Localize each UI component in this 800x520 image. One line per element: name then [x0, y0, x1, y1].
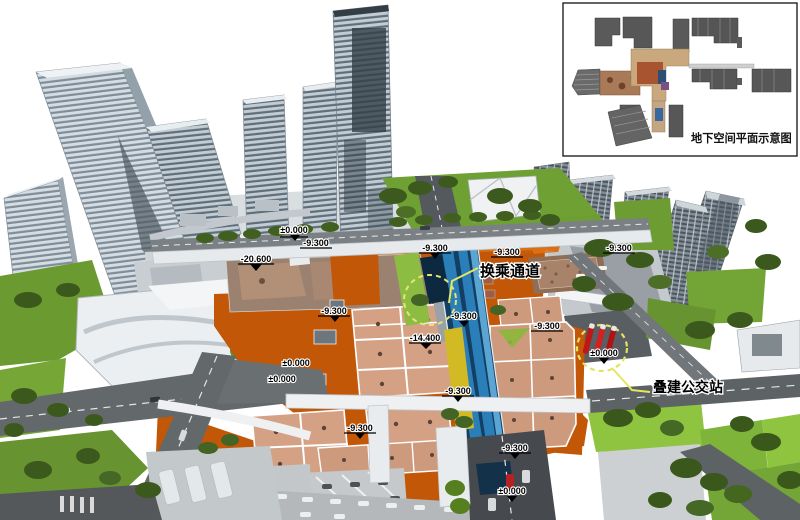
- svg-text:-9.300: -9.300: [502, 443, 528, 453]
- svg-text:±0.000: ±0.000: [282, 358, 309, 368]
- svg-text:-9.300: -9.300: [445, 386, 471, 396]
- svg-text:-9.300: -9.300: [303, 238, 329, 248]
- svg-text:-9.300: -9.300: [347, 423, 373, 433]
- svg-text:-9.300: -9.300: [606, 243, 632, 253]
- svg-text:-9.300: -9.300: [494, 247, 520, 257]
- svg-text:叠建公交站: 叠建公交站: [653, 379, 723, 395]
- svg-text:换乘通道: 换乘通道: [480, 262, 540, 280]
- svg-text:地下空间平面示意图: 地下空间平面示意图: [691, 131, 792, 145]
- svg-text:±0.000: ±0.000: [268, 374, 295, 384]
- svg-text:±0.000: ±0.000: [280, 225, 307, 235]
- svg-text:±0.000: ±0.000: [498, 486, 525, 496]
- svg-text:-9.300: -9.300: [534, 321, 560, 331]
- svg-text:-20.600: -20.600: [241, 254, 272, 264]
- svg-text:-9.300: -9.300: [321, 306, 347, 316]
- svg-text:-14.400: -14.400: [410, 333, 441, 343]
- svg-text:±0.000: ±0.000: [590, 348, 617, 358]
- svg-text:-9.300: -9.300: [422, 243, 448, 253]
- svg-text:-9.300: -9.300: [451, 311, 477, 321]
